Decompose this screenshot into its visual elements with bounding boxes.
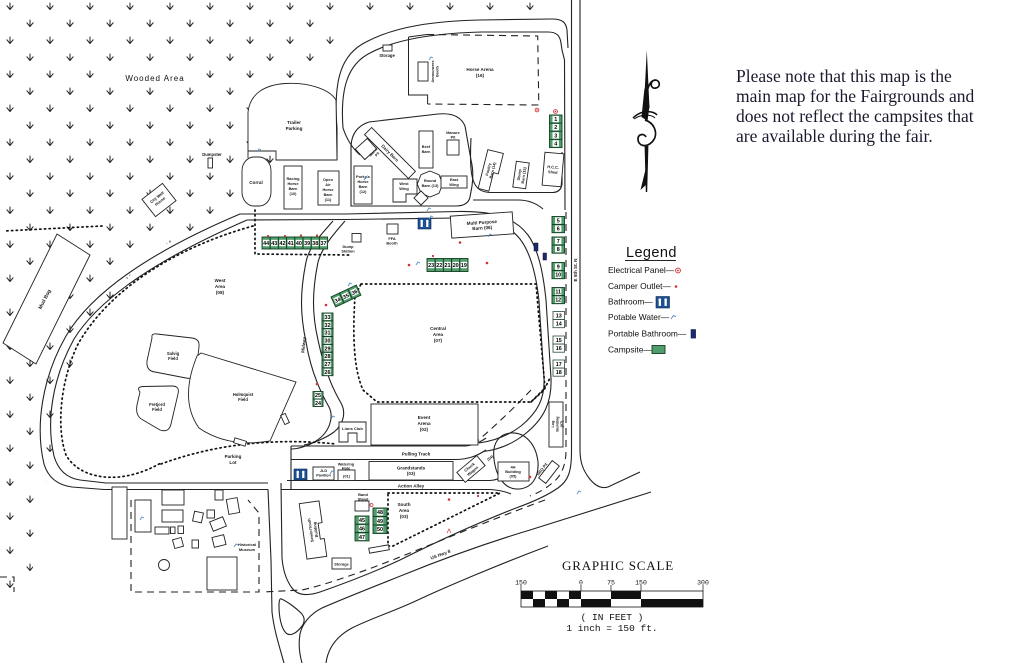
svg-text:Legend: Legend: [626, 245, 677, 261]
svg-text:5: 5: [557, 219, 560, 225]
svg-text:Wing: Wing: [449, 182, 459, 187]
svg-text:JLD: JLD: [320, 469, 327, 473]
svg-text:Field: Field: [238, 397, 248, 402]
svg-text:South: South: [397, 502, 410, 507]
svg-text:Lot: Lot: [229, 460, 237, 465]
svg-text:Grandstands: Grandstands: [397, 466, 426, 471]
svg-text:20: 20: [453, 263, 459, 269]
svg-text:Storage: Storage: [379, 53, 395, 58]
svg-text:38: 38: [312, 241, 318, 247]
svg-text:300: 300: [697, 580, 709, 587]
svg-text:150: 150: [515, 580, 527, 587]
svg-text:17: 17: [556, 362, 562, 368]
svg-text:(10): (10): [290, 191, 298, 196]
svg-text:42: 42: [280, 241, 286, 247]
svg-text:16: 16: [556, 346, 562, 352]
svg-text:10: 10: [555, 273, 561, 279]
svg-text:4: 4: [554, 142, 557, 148]
svg-text:31: 31: [325, 331, 331, 337]
svg-text:1 inch = 150 ft.: 1 inch = 150 ft.: [566, 623, 657, 634]
svg-text:(01): (01): [343, 474, 351, 479]
svg-text:Barn (13): Barn (13): [422, 183, 440, 188]
svg-text:(07): (07): [560, 420, 564, 427]
svg-text:Museum: Museum: [239, 547, 256, 552]
svg-text:25: 25: [315, 393, 321, 399]
svg-text:Area: Area: [215, 284, 226, 289]
svg-text:8: 8: [557, 247, 560, 253]
svg-text:47: 47: [359, 535, 365, 541]
svg-text:Potable Water—: Potable Water—: [608, 312, 670, 322]
svg-text:(11): (11): [325, 197, 332, 202]
svg-text:3: 3: [554, 133, 557, 139]
svg-text:33: 33: [325, 315, 331, 321]
svg-text:Wooded Area: Wooded Area: [125, 74, 184, 83]
svg-text:12: 12: [555, 298, 561, 304]
svg-text:2: 2: [554, 125, 557, 131]
svg-text:27: 27: [325, 362, 331, 368]
svg-text:main map for the Fairgrounds a: main map for the Fairgrounds and: [736, 86, 975, 106]
svg-text:Arena: Arena: [417, 421, 430, 426]
svg-text:Lions Club: Lions Club: [342, 426, 363, 431]
svg-text:49: 49: [377, 519, 383, 525]
svg-text:30: 30: [325, 339, 331, 345]
svg-text:26: 26: [325, 370, 331, 376]
svg-text:Manure: Manure: [446, 131, 460, 135]
svg-text:24: 24: [315, 401, 321, 407]
svg-text:14: 14: [556, 322, 562, 328]
svg-text:Parking: Parking: [225, 454, 242, 459]
svg-text:46: 46: [359, 526, 365, 532]
svg-text:Corral: Corral: [249, 180, 263, 185]
svg-text:(07): (07): [434, 338, 443, 343]
svg-text:Central: Central: [430, 326, 446, 331]
svg-text:are available during the fair.: are available during the fair.: [736, 126, 933, 146]
svg-text:Station: Station: [341, 249, 355, 254]
svg-text:45: 45: [359, 518, 365, 524]
svg-text:Campsite—: Campsite—: [608, 345, 652, 355]
svg-text:(03): (03): [400, 514, 409, 519]
svg-text:(08): (08): [216, 290, 225, 295]
svg-text:Camper Outlet—: Camper Outlet—: [608, 281, 671, 291]
svg-text:29: 29: [325, 346, 331, 352]
svg-text:Event: Event: [418, 415, 431, 420]
svg-text:Pit: Pit: [451, 136, 457, 140]
svg-text:Wing: Wing: [399, 186, 409, 191]
svg-text:48: 48: [377, 510, 383, 516]
svg-text:Please note that this map is t: Please note that this map is the: [736, 66, 952, 86]
svg-text:6: 6: [557, 227, 560, 233]
svg-text:75: 75: [607, 580, 615, 587]
svg-text:Action Alley: Action Alley: [398, 484, 425, 489]
svg-text:7: 7: [557, 239, 560, 245]
svg-text:Pulling Track: Pulling Track: [402, 452, 431, 457]
svg-text:15: 15: [556, 338, 562, 344]
svg-text:E 5th St. N: E 5th St. N: [573, 258, 578, 282]
svg-text:Dumpster: Dumpster: [202, 152, 222, 157]
svg-text:50: 50: [377, 527, 383, 533]
svg-text:West: West: [215, 278, 226, 283]
svg-text:( IN FEET ): ( IN FEET ): [581, 612, 644, 623]
svg-text:37: 37: [321, 241, 327, 247]
svg-text:150: 150: [635, 580, 647, 587]
svg-text:(12): (12): [360, 189, 368, 194]
svg-text:Electrical Panel—: Electrical Panel—: [608, 265, 675, 275]
svg-text:Booth: Booth: [436, 65, 440, 77]
svg-text:1: 1: [554, 117, 557, 123]
svg-text:32: 32: [325, 323, 331, 329]
svg-text:Horse Arena: Horse Arena: [466, 67, 494, 72]
svg-text:Shed: Shed: [548, 169, 559, 175]
svg-text:41: 41: [288, 241, 294, 247]
svg-text:Bathroom—: Bathroom—: [608, 297, 653, 307]
svg-text:(02): (02): [420, 427, 429, 432]
svg-text:does not reflect the campsites: does not reflect the campsites that: [736, 106, 974, 126]
svg-text:28: 28: [325, 354, 331, 360]
svg-text:(03): (03): [407, 471, 416, 476]
svg-text:18: 18: [556, 370, 562, 376]
svg-text:9: 9: [557, 265, 560, 271]
svg-text:Trailer: Trailer: [287, 120, 301, 125]
svg-text:Building: Building: [556, 416, 560, 432]
svg-text:21: 21: [445, 263, 451, 269]
svg-text:GRAPHIC SCALE: GRAPHIC SCALE: [562, 558, 674, 573]
svg-text:44: 44: [263, 241, 269, 247]
svg-text:Announcers: Announcers: [431, 60, 435, 82]
svg-text:Area: Area: [399, 508, 410, 513]
svg-text:11: 11: [555, 290, 561, 296]
svg-text:Field: Field: [152, 407, 162, 412]
svg-text:Pavilion: Pavilion: [316, 474, 331, 478]
svg-text:Parking: Parking: [286, 126, 303, 131]
svg-text:(05): (05): [510, 474, 518, 479]
svg-text:Portable Bathroom—: Portable Bathroom—: [608, 329, 687, 339]
svg-text:Area: Area: [433, 332, 444, 337]
svg-text:(16): (16): [476, 73, 485, 78]
svg-text:Barn: Barn: [422, 149, 431, 154]
svg-text:43: 43: [271, 241, 277, 247]
svg-text:Storage: Storage: [334, 562, 349, 567]
svg-text:0: 0: [579, 580, 583, 587]
svg-text:22: 22: [436, 263, 442, 269]
svg-text:19: 19: [461, 263, 467, 269]
svg-text:39: 39: [304, 241, 310, 247]
svg-text:13: 13: [556, 314, 562, 320]
svg-text:Log: Log: [551, 420, 555, 428]
svg-text:Booth: Booth: [386, 241, 398, 246]
svg-text:40: 40: [296, 241, 302, 247]
svg-text:Field: Field: [168, 356, 178, 361]
svg-text:23: 23: [428, 263, 434, 269]
